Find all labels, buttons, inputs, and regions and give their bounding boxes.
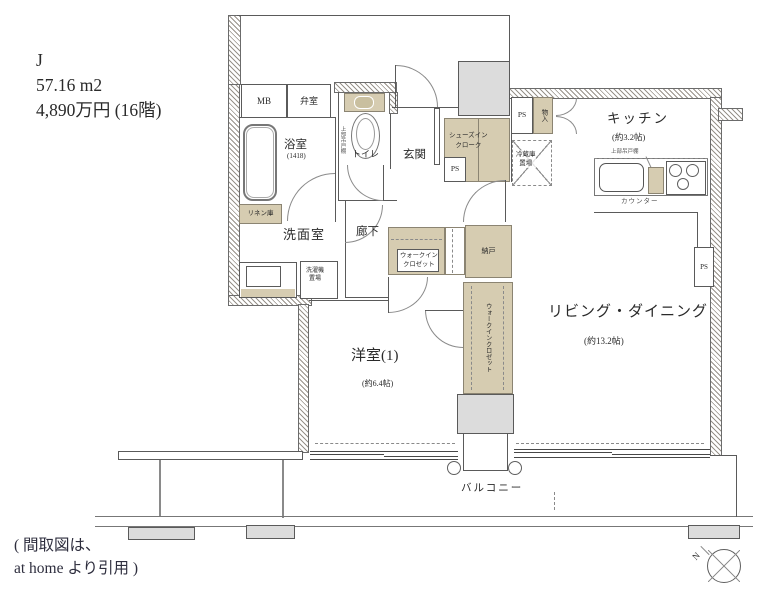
toilet-entry-wall	[390, 114, 391, 169]
kitchen-size-label: (約3.2帖)	[612, 132, 645, 142]
bedroom-door-leaf	[388, 277, 389, 313]
toilet-shelf-label: 上部吊戸棚	[339, 126, 345, 174]
closet-door-arc-bottom	[556, 116, 577, 134]
ps-box-sic: PS	[444, 157, 466, 182]
neighbor-slab	[118, 451, 303, 460]
top-boundary-line	[237, 15, 510, 16]
bedroom-top-line	[309, 300, 389, 301]
kitchen-shelf-label: 上部吊戸棚	[611, 149, 639, 155]
wic2-label: ウォークインクロゼット	[484, 303, 491, 372]
balcony-post-circle-right	[508, 461, 522, 475]
floorplan-page: J 57.16 m2 4,890万円 (16階) MB 弁室 浴室 (1418)…	[0, 0, 768, 594]
fridge-label-line2: 置場	[519, 160, 532, 167]
toilet-bowl-inner	[356, 118, 375, 150]
living-window-sash-1	[514, 452, 612, 453]
bedroom-window-sash-2	[384, 456, 458, 457]
wic-partition-dash	[452, 229, 453, 273]
compass-circle	[707, 549, 741, 583]
storeroom: 納戸	[465, 225, 512, 278]
washer-label-line2: 置場	[309, 276, 321, 282]
wic1-label-line1: ウォークイン	[400, 252, 438, 259]
structure-void-box	[458, 61, 510, 116]
ps-box-right: PS	[694, 247, 714, 287]
bath-toilet-wall	[335, 117, 336, 222]
fridge-label-line1: 冷蔵庫	[516, 151, 536, 158]
meter-box: MB	[241, 84, 287, 118]
living-dining-label: リビング・ダイニング	[548, 304, 708, 322]
stove-burner-1	[669, 164, 682, 177]
fridge-label: 冷蔵庫 置場	[516, 150, 536, 168]
compass-north-label: N	[690, 550, 702, 562]
kitchen-label: キッチン	[607, 111, 669, 127]
counter-label: カウンター	[621, 198, 659, 206]
ps-box-kitchen: PS	[511, 97, 533, 134]
meter-box-label: MB	[257, 96, 271, 107]
wic2-rod-dash-1	[471, 286, 472, 390]
balcony-right-top	[710, 455, 737, 456]
wall-toilet-top	[334, 82, 397, 93]
vanity-sink	[246, 266, 281, 287]
storeroom-label: 納戸	[482, 247, 496, 255]
wall-top-left	[228, 15, 241, 85]
wic2-door-leaf	[425, 310, 463, 311]
kitchen-sink	[599, 163, 644, 192]
living-window	[514, 449, 710, 458]
bedroom-size-label: (約6.4帖)	[362, 379, 393, 388]
bathroom-label: 浴室	[284, 139, 307, 153]
powder-room-label: 洗面室	[283, 227, 325, 242]
balcony-post-1	[128, 527, 195, 540]
stove-burner-2	[686, 164, 699, 177]
sic-label-line1: シューズイン	[449, 132, 488, 139]
bathroom-size-label: (1418)	[287, 152, 306, 160]
toilet-door-leaf	[383, 165, 384, 201]
wic2-rod-dash-2	[503, 286, 504, 390]
stove-burner-3	[677, 178, 689, 190]
hallway-label: 廊下	[356, 226, 379, 240]
balcony-rail-outer	[95, 516, 753, 517]
wic-partition-strip	[445, 227, 465, 275]
ps-label-kitchen: PS	[518, 111, 526, 120]
entry-door-arc	[396, 65, 438, 107]
unit-area-label: 57.16 m2	[36, 75, 102, 96]
wic1-rod-dash	[391, 239, 442, 240]
valve-room-label: 弁室	[300, 96, 318, 107]
wall-bedroom-left	[298, 304, 309, 453]
washer-label-line1: 洗濯機	[306, 268, 324, 274]
balcony-divider	[282, 460, 284, 518]
balcony-mark-dash	[554, 492, 555, 510]
citation-line2: at home より引用 )	[14, 560, 138, 578]
valve-room-box: 弁室	[287, 84, 331, 118]
bathroom-door-arc	[287, 173, 335, 221]
bedroom-label: 洋室(1)	[351, 348, 399, 366]
toilet-tank-lid	[354, 96, 374, 109]
living-curtain-dash	[516, 443, 704, 444]
balcony-post-circle-left	[447, 461, 461, 475]
ld-door-arc	[463, 180, 505, 222]
top-boundary-line-vertical	[509, 15, 510, 62]
closet-door-arc-top	[556, 98, 577, 116]
ps-label-right: PS	[700, 263, 708, 271]
structure-column	[457, 394, 514, 434]
balcony-right-edge	[736, 455, 737, 517]
ld-door-leaf	[505, 180, 506, 222]
compass-cross	[708, 550, 740, 582]
sic-label-line2: クローク	[455, 142, 481, 149]
citation-line1: ( 間取図は、	[14, 537, 101, 555]
kitchen-shelf-block	[648, 167, 664, 194]
unit-price-label: 4,890万円 (16階)	[36, 100, 161, 121]
ps-label-sic: PS	[451, 165, 459, 174]
bedroom-curtain-dash	[315, 443, 455, 444]
entrance-label: 玄関	[403, 149, 426, 163]
wall-right-stub	[718, 108, 743, 121]
bedroom-door-arc	[388, 277, 428, 313]
entry-sill-line	[392, 107, 458, 108]
sic-sliding-door	[434, 108, 440, 165]
unit-type-label: J	[36, 50, 43, 71]
wic2-door-arc	[425, 310, 463, 348]
bedroom-window-sash-1	[310, 454, 384, 455]
linen-closet: リネン庫	[239, 204, 282, 224]
kitchen-side-line	[697, 212, 698, 248]
sic-label: シューズイン クローク	[449, 131, 488, 151]
balcony-post-2	[246, 525, 295, 539]
toilet-door-arc	[347, 165, 383, 201]
wic1-label: ウォークイン クロゼット	[400, 251, 438, 269]
hall-bottom-line	[345, 297, 388, 298]
linen-label: リネン庫	[248, 210, 274, 218]
balcony-post-3	[688, 525, 740, 539]
washer-label: 洗濯機 置場	[306, 268, 324, 284]
upper-closet: 物入	[533, 97, 553, 134]
living-dining-size-label: (約13.2帖)	[584, 336, 624, 347]
neighbor-partition-line	[159, 460, 161, 517]
bathtub-inner	[246, 127, 274, 198]
vanity-counter	[241, 289, 295, 297]
wic1-label-line2: クロゼット	[403, 261, 434, 268]
toilet-label: トイレ	[352, 149, 379, 160]
upper-closet-label: 物入	[539, 109, 547, 122]
entry-door-leaf	[395, 65, 396, 107]
kitchen-counter-dash	[594, 158, 708, 159]
column-notch	[463, 433, 508, 471]
bedroom-window	[310, 451, 458, 460]
hall-top-line	[338, 200, 397, 201]
counter-front-line	[594, 212, 698, 213]
balcony-label: バルコニー	[461, 483, 523, 495]
living-window-sash-2	[612, 454, 710, 455]
